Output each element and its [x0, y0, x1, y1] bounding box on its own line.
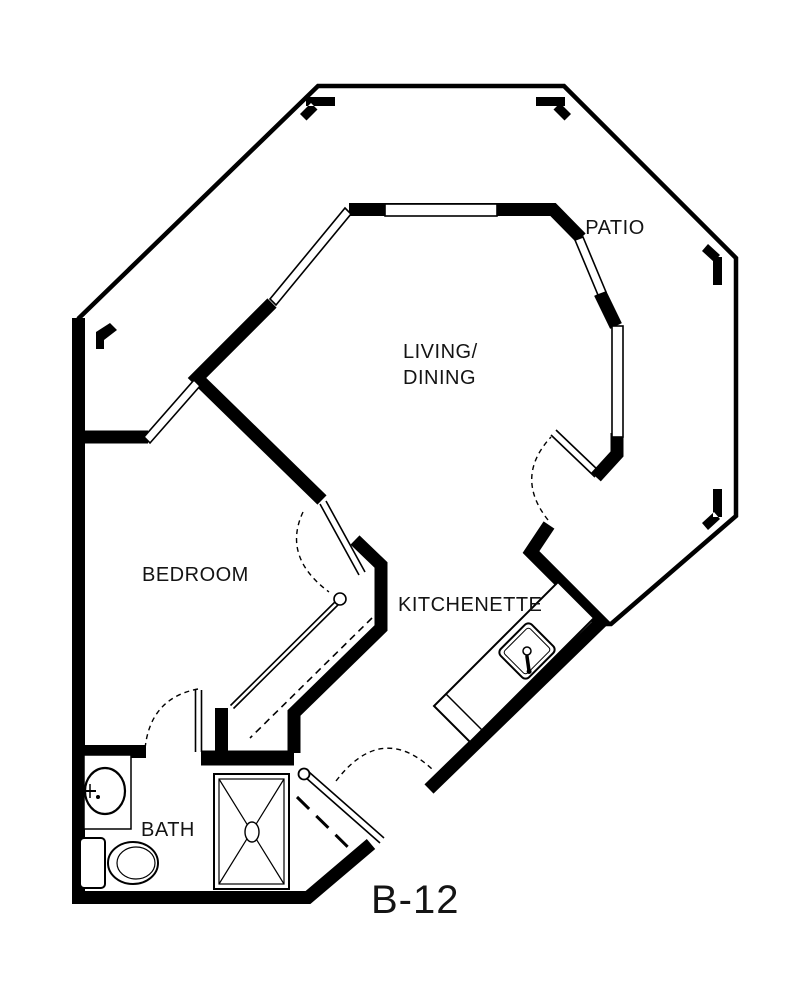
window-west	[270, 208, 351, 305]
label-living-line2: DINING	[403, 367, 476, 389]
closet-door-roller-icon	[334, 593, 346, 605]
wall-closet-hall	[294, 540, 381, 753]
floor-plan-page: PATIO LIVING/ DINING BEDROOM KITCHENETTE…	[0, 0, 811, 998]
wall-interior-divider	[197, 303, 322, 500]
corner-column-marker-right-lower-icon	[702, 489, 722, 530]
unit-walls	[72, 210, 617, 904]
window-east	[612, 326, 623, 437]
bath-sink-icon	[83, 755, 131, 829]
toilet-icon	[80, 838, 158, 888]
corner-column-marker-right-upper-icon	[702, 244, 722, 285]
windows	[144, 204, 623, 443]
door-patio	[532, 430, 600, 520]
floor-plan-drawing: PATIO LIVING/ DINING BEDROOM KITCHENETTE…	[0, 0, 811, 998]
label-bath: BATH	[141, 819, 195, 841]
door-bath	[145, 689, 202, 752]
label-patio: PATIO	[585, 217, 645, 239]
wall-living-northeast-corner	[600, 293, 616, 326]
window-northeast	[575, 237, 606, 295]
label-kitchenette: KITCHENETTE	[398, 594, 542, 616]
window-top	[385, 204, 497, 216]
closet-dashed-line	[250, 618, 372, 738]
corner-column-marker-left-icon	[96, 323, 117, 349]
window-bedroom	[144, 380, 200, 443]
corner-column-marker-topright-icon	[536, 97, 571, 121]
door-entry	[297, 748, 432, 856]
door-entry-handle-icon	[299, 769, 310, 780]
label-unit-number: B-12	[371, 878, 460, 922]
label-bedroom: BEDROOM	[142, 564, 249, 586]
corner-column-markers	[96, 97, 722, 530]
shower-icon	[214, 774, 289, 889]
label-living-line1: LIVING/	[403, 341, 478, 363]
